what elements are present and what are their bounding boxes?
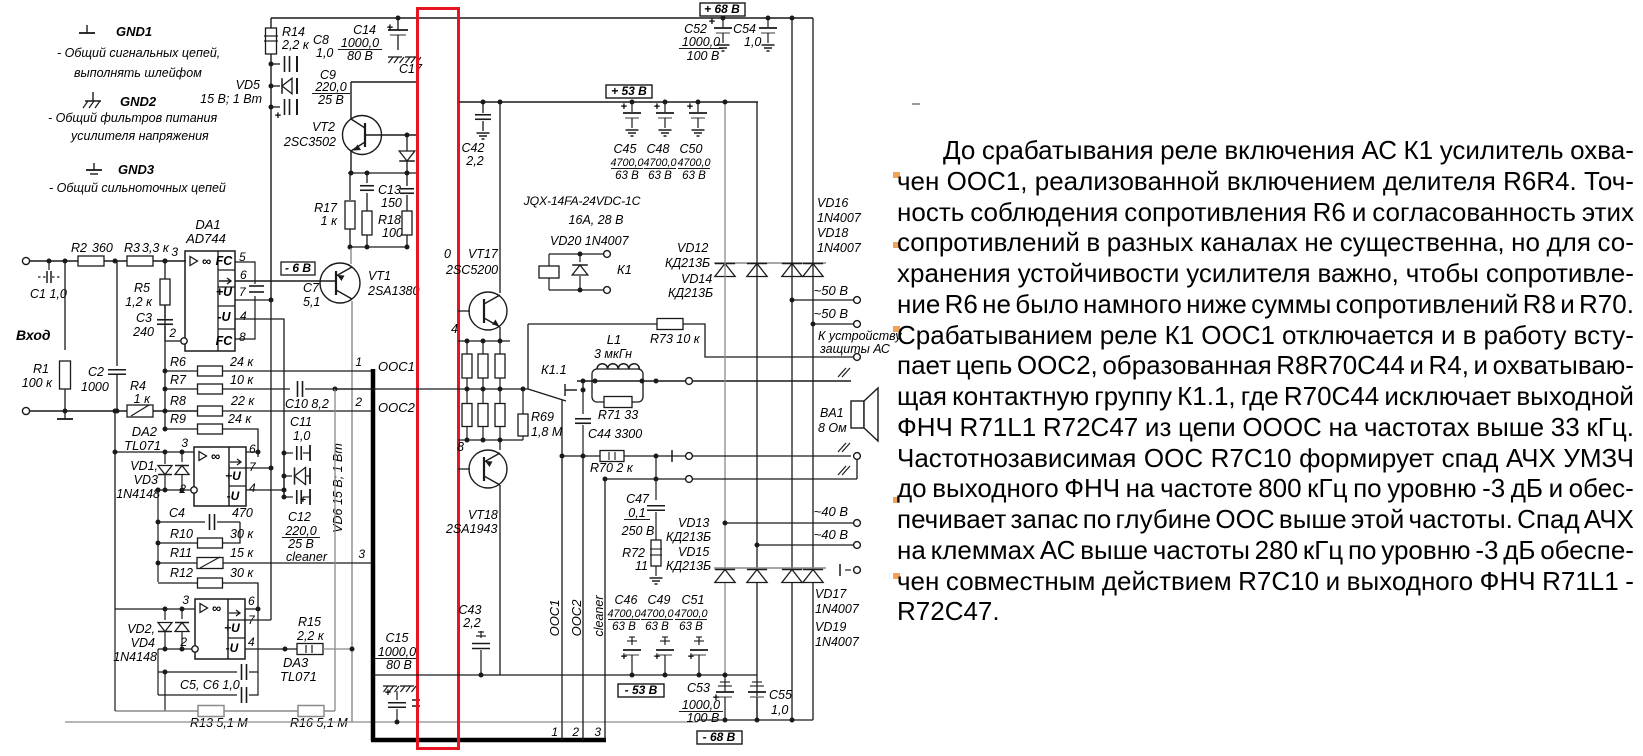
svg-text:+U: +U — [225, 469, 241, 483]
svg-text:360: 360 — [92, 241, 113, 255]
svg-text:VD5: VD5 — [236, 78, 260, 92]
svg-text:8 Ом: 8 Ом — [818, 421, 847, 435]
svg-text:100 к: 100 к — [22, 376, 53, 390]
svg-text:C45: C45 — [614, 142, 637, 156]
svg-text:1: 1 — [355, 355, 362, 369]
svg-text:1,0: 1,0 — [316, 46, 333, 60]
svg-text:DA1: DA1 — [195, 217, 220, 232]
svg-text:C42: C42 — [462, 141, 485, 155]
svg-text:470: 470 — [232, 506, 253, 520]
svg-text:16А, 28 В: 16А, 28 В — [569, 213, 624, 227]
svg-text:КД213Б: КД213Б — [666, 530, 711, 544]
svg-text:2: 2 — [571, 725, 579, 739]
svg-text:63 В: 63 В — [648, 170, 672, 182]
svg-text:1N4148: 1N4148 — [116, 487, 160, 501]
svg-text:+ 68 В: + 68 В — [704, 2, 740, 16]
svg-text:R73 10 к: R73 10 к — [650, 332, 701, 346]
svg-text:80 В: 80 В — [347, 49, 373, 63]
svg-text:ООС1: ООС1 — [378, 359, 415, 374]
svg-text:C49: C49 — [648, 593, 671, 607]
svg-text:4700,0: 4700,0 — [610, 157, 643, 169]
svg-text:30 к: 30 к — [230, 527, 254, 541]
svg-text:~50 В: ~50 В — [814, 283, 849, 298]
svg-text:R1: R1 — [33, 362, 49, 376]
svg-text:~50 В: ~50 В — [814, 306, 849, 321]
svg-text:4700,0: 4700,0 — [677, 157, 710, 169]
svg-text:1 к: 1 к — [134, 392, 151, 406]
svg-text:1N4007: 1N4007 — [815, 635, 860, 649]
svg-text:ООС2: ООС2 — [378, 400, 416, 415]
svg-text:FC: FC — [216, 254, 234, 268]
svg-text:VT1: VT1 — [368, 269, 391, 283]
svg-text:C13: C13 — [378, 183, 401, 197]
svg-text:1,0: 1,0 — [293, 429, 310, 443]
svg-text:+: + — [709, 16, 715, 28]
svg-text:R16 5,1 М: R16 5,1 М — [290, 716, 348, 730]
svg-text:1 к: 1 к — [321, 214, 338, 228]
svg-text:+: + — [687, 101, 693, 113]
svg-text:К устройству: К устройству — [818, 329, 902, 343]
svg-text:VD4: VD4 — [131, 636, 155, 650]
svg-text:1000: 1000 — [81, 380, 109, 394]
svg-text:80 В: 80 В — [386, 658, 412, 672]
svg-text:усилителя напряжения: усилителя напряжения — [70, 129, 209, 143]
svg-text:- 53 В: - 53 В — [625, 683, 658, 697]
svg-text:3: 3 — [358, 547, 365, 561]
svg-text:6: 6 — [240, 268, 247, 282]
svg-text:1N4007: 1N4007 — [815, 602, 860, 616]
svg-text:C1 1,0: C1 1,0 — [30, 287, 67, 301]
svg-text:TL071: TL071 — [280, 669, 317, 684]
svg-text:VD18: VD18 — [817, 226, 848, 240]
svg-text:5,1: 5,1 — [303, 295, 320, 309]
svg-text:1,0: 1,0 — [771, 703, 788, 717]
svg-text:C15: C15 — [386, 631, 409, 645]
svg-text:+: + — [621, 651, 627, 663]
svg-text:63 В: 63 В — [682, 170, 706, 182]
svg-text:4: 4 — [451, 322, 458, 336]
svg-text:4: 4 — [249, 481, 256, 495]
svg-text:100: 100 — [382, 226, 403, 240]
svg-text:220,0: 220,0 — [314, 80, 346, 94]
svg-text:1,0: 1,0 — [744, 35, 761, 49]
svg-text:R4: R4 — [130, 379, 146, 393]
svg-text:∞: ∞ — [211, 449, 220, 464]
svg-text:4700,0: 4700,0 — [674, 608, 707, 620]
svg-text:R14: R14 — [282, 25, 305, 39]
svg-text:63 В: 63 В — [615, 170, 639, 182]
svg-text:1N4007: 1N4007 — [817, 241, 862, 255]
svg-text:15 к: 15 к — [230, 546, 254, 560]
svg-text:- Общий фильтров питания: - Общий фильтров питания — [48, 111, 217, 125]
svg-text:150: 150 — [381, 196, 402, 210]
svg-text:выполнять шлейфом: выполнять шлейфом — [74, 66, 202, 80]
svg-text:C55: C55 — [769, 688, 792, 702]
svg-text:GND2: GND2 — [120, 94, 157, 109]
svg-text:К1.1: К1.1 — [541, 362, 567, 377]
svg-text:DA3: DA3 — [283, 655, 309, 670]
svg-text:GND3: GND3 — [118, 162, 155, 177]
svg-text:VD12: VD12 — [677, 241, 708, 255]
svg-text:+: + — [387, 22, 393, 34]
svg-text:C14: C14 — [353, 23, 376, 37]
svg-text:10 к: 10 к — [230, 373, 254, 387]
svg-text:C47: C47 — [626, 492, 650, 506]
svg-text:2,2: 2,2 — [462, 616, 480, 630]
svg-text:C46: C46 — [615, 593, 638, 607]
svg-text:- 6 В: - 6 В — [285, 261, 311, 275]
svg-text:24 к: 24 к — [227, 412, 252, 426]
svg-text:R69: R69 — [531, 410, 554, 424]
svg-text:25 В: 25 В — [317, 93, 344, 107]
svg-text:25 В: 25 В — [287, 537, 314, 551]
svg-text:1: 1 — [551, 725, 558, 739]
svg-text:7: 7 — [239, 285, 247, 299]
svg-text:3 мкГн: 3 мкГн — [594, 347, 632, 361]
svg-text:6: 6 — [248, 594, 255, 608]
svg-text:R18: R18 — [378, 213, 401, 227]
svg-text:VD16: VD16 — [817, 196, 848, 210]
svg-text:DA2: DA2 — [132, 424, 158, 439]
svg-text:- 68 В: - 68 В — [703, 730, 736, 744]
svg-text:C12: C12 — [288, 510, 311, 524]
svg-text:C8: C8 — [313, 33, 329, 47]
svg-text:~40 В: ~40 В — [814, 527, 849, 542]
svg-text:R72: R72 — [622, 546, 645, 560]
svg-text:+: + — [385, 687, 391, 699]
svg-text:1N4007: 1N4007 — [817, 211, 862, 225]
svg-text:2SC5200: 2SC5200 — [445, 263, 498, 277]
svg-text:1,8 М: 1,8 М — [531, 425, 563, 439]
svg-text:1000,0: 1000,0 — [378, 645, 416, 659]
svg-text:4700,0: 4700,0 — [640, 608, 673, 620]
svg-text:∞: ∞ — [212, 601, 221, 616]
svg-text:cleaner: cleaner — [592, 595, 606, 637]
svg-text:VD1,: VD1, — [130, 459, 158, 473]
svg-text:+ 53 В: + 53 В — [611, 84, 647, 98]
svg-text:3: 3 — [181, 436, 188, 450]
svg-text:C2: C2 — [88, 365, 104, 379]
svg-text:2: 2 — [168, 326, 176, 340]
svg-text:VD20 1N4007: VD20 1N4007 — [550, 234, 630, 248]
svg-text:1,2 к: 1,2 к — [125, 295, 153, 309]
svg-text:C51: C51 — [682, 593, 705, 607]
svg-text:R12: R12 — [170, 566, 193, 580]
svg-text:VD19: VD19 — [815, 620, 846, 634]
svg-text:R10: R10 — [170, 527, 193, 541]
svg-text:3: 3 — [594, 725, 601, 739]
svg-text:3,3 к: 3,3 к — [142, 241, 170, 255]
svg-text:4: 4 — [248, 635, 255, 649]
svg-text:15 В; 1 Вт: 15 В; 1 Вт — [200, 92, 262, 106]
svg-text:C5, C6 1,0: C5, C6 1,0 — [180, 678, 240, 692]
svg-text:63 В: 63 В — [679, 621, 703, 633]
svg-text:1N4148: 1N4148 — [113, 650, 157, 664]
svg-text:TL071: TL071 — [124, 438, 161, 453]
svg-text:100 В: 100 В — [687, 711, 720, 725]
svg-text:22 к: 22 к — [230, 394, 255, 408]
svg-text:2,2 к: 2,2 к — [296, 629, 325, 643]
svg-text:∞: ∞ — [202, 254, 211, 269]
svg-text:+: + — [300, 494, 306, 506]
svg-text:VD2,: VD2, — [127, 622, 155, 636]
svg-text:- Общий сильноточных цепей: - Общий сильноточных цепей — [49, 181, 226, 195]
svg-text:L1: L1 — [607, 332, 621, 347]
svg-text:C4: C4 — [169, 506, 185, 520]
svg-text:2SC3502: 2SC3502 — [283, 135, 336, 149]
svg-text:FC: FC — [216, 334, 234, 348]
svg-text:R5: R5 — [134, 281, 150, 295]
svg-text:3: 3 — [182, 593, 189, 607]
svg-text:ООС2: ООС2 — [569, 599, 584, 637]
svg-text:VD13: VD13 — [678, 516, 709, 530]
svg-text:R8: R8 — [170, 394, 186, 408]
svg-text:- Общий сигнальных цепей,: - Общий сигнальных цепей, — [57, 46, 220, 60]
svg-text:250 В: 250 В — [621, 524, 655, 538]
svg-text:AD744: AD744 — [185, 231, 226, 246]
svg-text:C54: C54 — [733, 22, 756, 36]
svg-text:КД213Б: КД213Б — [665, 256, 710, 270]
svg-text:+: + — [688, 651, 694, 663]
svg-text:VT2: VT2 — [312, 120, 335, 134]
svg-text:8: 8 — [457, 440, 464, 454]
svg-text:R9: R9 — [170, 412, 186, 426]
svg-text:~40 В: ~40 В — [814, 504, 849, 519]
svg-text:R70 2 к: R70 2 к — [590, 461, 634, 475]
svg-text:2SA1380: 2SA1380 — [367, 284, 419, 298]
svg-text:VD3: VD3 — [134, 473, 158, 487]
svg-text:R2: R2 — [71, 241, 87, 255]
svg-text:C3: C3 — [136, 311, 152, 325]
svg-text:R3: R3 — [124, 241, 140, 255]
svg-text:R15: R15 — [298, 615, 321, 629]
svg-text:100 В: 100 В — [687, 49, 720, 63]
svg-text:Вход: Вход — [16, 327, 51, 343]
svg-text:К1: К1 — [617, 262, 632, 277]
svg-text:GND1: GND1 — [116, 24, 152, 39]
svg-text:63 В: 63 В — [645, 621, 669, 633]
svg-text:R7: R7 — [170, 373, 187, 387]
svg-text:240: 240 — [132, 325, 154, 339]
svg-text:C44 3300: C44 3300 — [588, 427, 642, 441]
svg-text:cleaner: cleaner — [286, 550, 328, 564]
svg-text:VD14: VD14 — [681, 272, 712, 286]
svg-text:7: 7 — [249, 460, 257, 474]
svg-text:2,2: 2,2 — [465, 154, 483, 168]
svg-text:4: 4 — [240, 309, 247, 323]
svg-text:C43: C43 — [459, 603, 482, 617]
svg-text:-U: -U — [217, 310, 231, 324]
svg-text:ООС1: ООС1 — [547, 600, 562, 637]
svg-text:+: + — [654, 651, 660, 663]
svg-text:КД213Б: КД213Б — [666, 559, 711, 573]
svg-text:C53: C53 — [687, 681, 710, 695]
svg-text:30 к: 30 к — [230, 566, 254, 580]
svg-text:R17: R17 — [314, 201, 338, 215]
svg-text:C50: C50 — [680, 142, 703, 156]
svg-text:C7: C7 — [303, 281, 320, 295]
svg-text:2,2 к: 2,2 к — [281, 38, 310, 52]
svg-text:1000,0: 1000,0 — [682, 35, 720, 49]
svg-text:11: 11 — [635, 559, 648, 573]
svg-text:R71 33: R71 33 — [598, 408, 638, 422]
svg-text:C52: C52 — [684, 22, 707, 36]
svg-text:0,1: 0,1 — [628, 506, 645, 520]
svg-text:JQX-14FA-24VDC-1C: JQX-14FA-24VDC-1C — [523, 194, 641, 208]
svg-text:1000,0: 1000,0 — [341, 36, 379, 50]
svg-text:VT18: VT18 — [468, 508, 498, 522]
svg-text:КД213Б: КД213Б — [668, 286, 713, 300]
svg-text:+: + — [654, 101, 660, 113]
svg-text:VD6 15 В; 1 Вт: VD6 15 В; 1 Вт — [331, 443, 345, 533]
svg-text:+U: +U — [224, 621, 240, 635]
svg-text:63 В: 63 В — [612, 621, 636, 633]
svg-text:4700,0: 4700,0 — [607, 608, 640, 620]
svg-text:C17: C17 — [399, 62, 423, 76]
svg-text:4700,0: 4700,0 — [643, 157, 676, 169]
svg-text:6: 6 — [249, 442, 256, 456]
svg-text:2: 2 — [354, 395, 362, 409]
svg-text:VT17: VT17 — [468, 247, 499, 261]
svg-text:VD17: VD17 — [815, 587, 847, 601]
svg-text:3: 3 — [171, 245, 178, 259]
svg-text:+: + — [621, 101, 627, 113]
svg-text:R6: R6 — [170, 355, 186, 369]
svg-text:220,0: 220,0 — [284, 524, 316, 538]
svg-text:R13 5,1 М: R13 5,1 М — [190, 716, 248, 730]
svg-text:2SA1943: 2SA1943 — [445, 522, 497, 536]
svg-text:1000,0: 1000,0 — [682, 698, 720, 712]
svg-text:0: 0 — [444, 247, 451, 261]
svg-text:C48: C48 — [647, 142, 670, 156]
svg-text:BA1: BA1 — [820, 406, 844, 420]
svg-text:24 к: 24 к — [229, 355, 254, 369]
svg-text:+: + — [275, 110, 281, 122]
svg-text:R11: R11 — [170, 546, 192, 560]
svg-text:8: 8 — [239, 330, 246, 344]
svg-text:C10 8,2: C10 8,2 — [285, 397, 329, 411]
svg-text:VD15: VD15 — [678, 545, 709, 559]
svg-text:C11: C11 — [290, 415, 312, 429]
